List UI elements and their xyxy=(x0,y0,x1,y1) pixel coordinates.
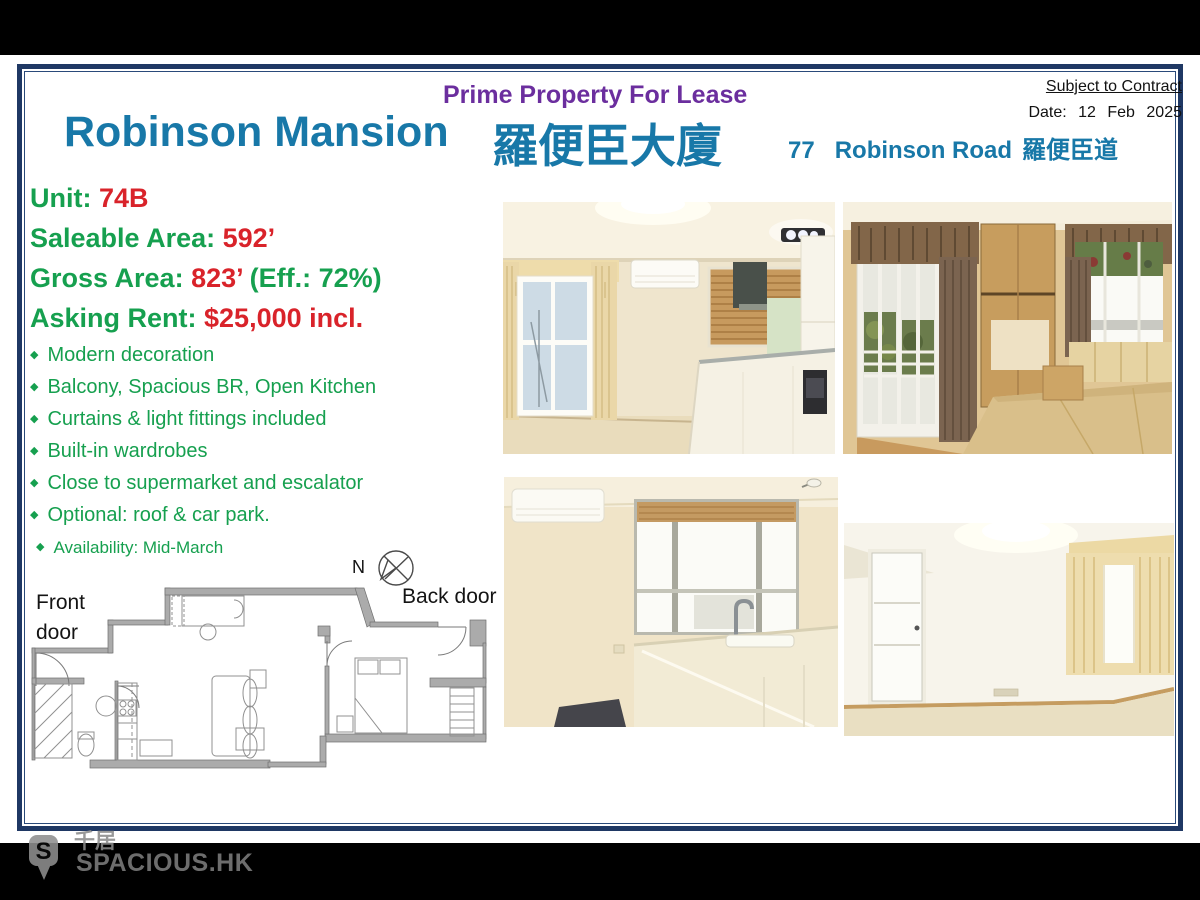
diamond-bullet-icon: ◆ xyxy=(30,381,38,393)
watermark-brand: SPACIOUS.HK xyxy=(76,849,253,878)
detail-gross-area: Gross Area: 823’ (Eff.: 72%) xyxy=(30,263,382,303)
list-item: ◆Curtains & light fittings included xyxy=(30,405,376,437)
diamond-bullet-icon: ◆ xyxy=(30,349,38,361)
diamond-bullet-icon: ◆ xyxy=(30,477,38,489)
tagline: Prime Property For Lease xyxy=(443,81,747,110)
subject-to-contract: Subject to Contract xyxy=(1046,78,1182,96)
list-item: ◆Modern decoration xyxy=(30,341,376,373)
detail-unit: Unit: 74B xyxy=(30,183,382,223)
compass-icon xyxy=(379,551,413,585)
detail-saleable-area: Saleable Area: 592’ xyxy=(30,223,382,263)
page-title-chinese: 羅便臣大廈 xyxy=(492,110,722,176)
photo-kitchen-window xyxy=(504,477,838,727)
svg-text:S: S xyxy=(35,838,51,865)
address-line: 77Robinson Road羅便臣道 xyxy=(788,130,1118,165)
diamond-bullet-icon: ◆ xyxy=(30,445,38,457)
diamond-bullet-icon: ◆ xyxy=(30,413,38,425)
date-line: Date: 12 Feb 2025 xyxy=(1028,104,1182,122)
photo-living-room-open-kitchen xyxy=(503,202,835,454)
list-item: ◆Balcony, Spacious BR, Open Kitchen xyxy=(30,373,376,405)
list-item: ◆Close to supermarket and escalator xyxy=(30,469,376,501)
address-number: 77 xyxy=(788,137,815,164)
photo-bedroom-balcony xyxy=(843,202,1172,454)
property-details: Unit: 74B Saleable Area: 592’ Gross Area… xyxy=(30,183,382,343)
list-item: ◆Built-in wardrobes xyxy=(30,437,376,469)
address-road: Robinson Road xyxy=(835,137,1012,164)
feature-list: ◆Modern decoration ◆Balcony, Spacious BR… xyxy=(30,341,376,565)
diamond-bullet-icon: ◆ xyxy=(30,509,38,521)
detail-asking-rent: Asking Rent: $25,000 incl. xyxy=(30,303,382,343)
floor-plan-drawing xyxy=(22,548,492,798)
page-title: Robinson Mansion xyxy=(64,108,449,157)
spacious-pin-icon: S xyxy=(28,834,60,882)
photo-empty-room-door xyxy=(844,523,1174,736)
address-chinese: 羅便臣道 xyxy=(1022,137,1118,164)
flyer-page: Prime Property For Lease Robinson Mansio… xyxy=(0,0,1200,900)
list-item: ◆Optional: roof & car park. xyxy=(30,501,376,533)
